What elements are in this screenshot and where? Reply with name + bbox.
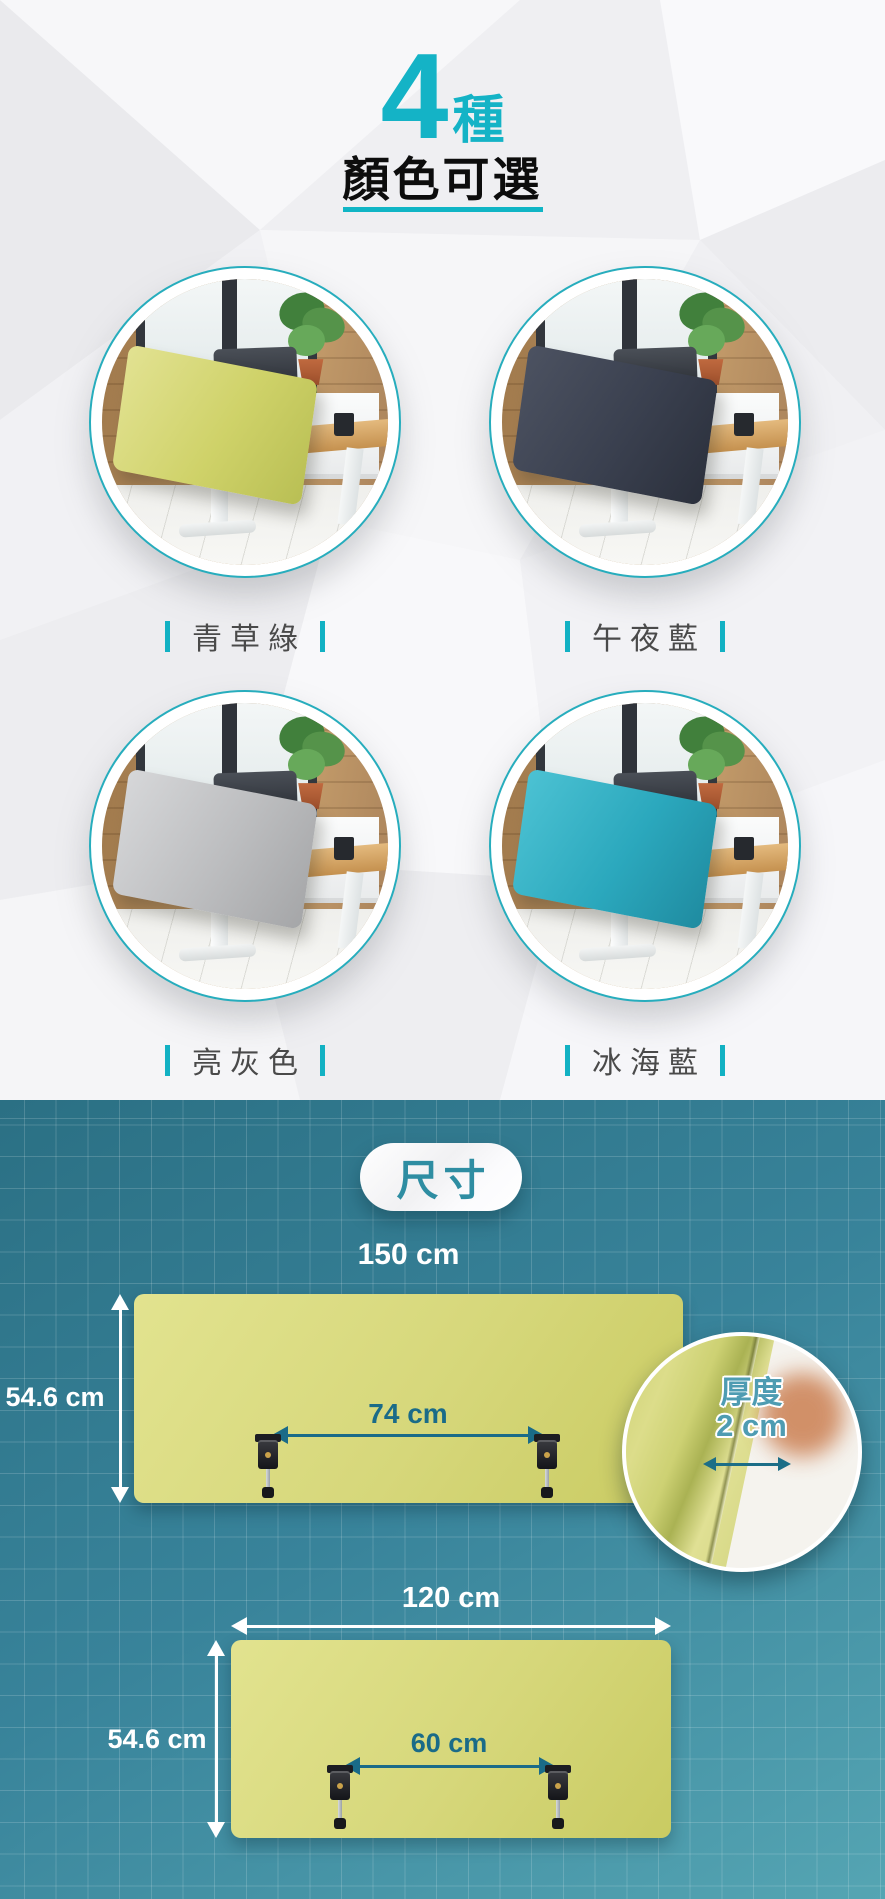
label-bar-right bbox=[320, 1045, 325, 1076]
title-underline bbox=[343, 207, 543, 212]
product-label-text: 午夜藍 bbox=[584, 614, 706, 658]
product-label-text: 亮灰色 bbox=[184, 1038, 306, 1082]
large-panel-span-label: 74 cm bbox=[308, 1398, 508, 1430]
small-panel-width-label: 120 cm bbox=[351, 1582, 551, 1615]
label-bar-right bbox=[720, 1045, 725, 1076]
dimensions-badge-text: 尺寸 bbox=[391, 1147, 490, 1208]
mug bbox=[334, 837, 354, 860]
desk-clamp bbox=[545, 1768, 571, 1830]
product-label-text: 冰海藍 bbox=[584, 1038, 706, 1082]
product-label: 冰海藍 bbox=[489, 1038, 801, 1082]
product-photo bbox=[502, 703, 788, 989]
product-label: 午夜藍 bbox=[489, 614, 801, 658]
panel-edge-fabric bbox=[622, 1332, 781, 1572]
product-card: 青草綠 bbox=[89, 266, 401, 658]
thickness-label: 厚度 2 cm bbox=[684, 1376, 819, 1443]
product-photo bbox=[102, 703, 388, 989]
small-panel-height-label: 54.6 cm bbox=[97, 1724, 217, 1755]
product-photo-circle bbox=[489, 266, 801, 578]
label-bar-left bbox=[565, 621, 570, 652]
thickness-inset-photo: 厚度 2 cm bbox=[622, 1332, 862, 1572]
mug bbox=[734, 413, 754, 436]
dimensions-section: 尺寸 150 cm 54.6 cm 74 cm 厚度 2 cm 120 bbox=[0, 1100, 885, 1899]
thickness-value: 2 cm bbox=[684, 1409, 819, 1442]
product-card: 亮灰色 bbox=[89, 690, 401, 1082]
large-panel-height-label: 54.6 cm bbox=[0, 1382, 110, 1413]
product-photo-circle bbox=[89, 266, 401, 578]
page-title: 4 種 bbox=[0, 40, 885, 153]
small-panel-span-label: 60 cm bbox=[349, 1728, 549, 1759]
product-card: 午夜藍 bbox=[489, 266, 801, 658]
color-options-section: 4 種 顏色可選 bbox=[0, 0, 885, 1100]
label-bar-left bbox=[165, 621, 170, 652]
product-label: 亮灰色 bbox=[89, 1038, 401, 1082]
product-photo bbox=[502, 279, 788, 565]
mug bbox=[334, 413, 354, 436]
desk-clamp bbox=[255, 1437, 281, 1499]
label-bar-right bbox=[320, 621, 325, 652]
label-bar-left bbox=[565, 1045, 570, 1076]
product-card: 冰海藍 bbox=[489, 690, 801, 1082]
thickness-label-text: 厚度 bbox=[684, 1376, 819, 1409]
dimensions-badge: 尺寸 bbox=[360, 1143, 522, 1211]
label-bar-left bbox=[165, 1045, 170, 1076]
desk-clamp bbox=[327, 1768, 353, 1830]
page-subtitle: 顏色可選 bbox=[0, 141, 885, 210]
desk-clamp bbox=[534, 1437, 560, 1499]
product-grid: 青草綠 bbox=[0, 266, 885, 1096]
product-label-text: 青草綠 bbox=[184, 614, 306, 658]
mug bbox=[734, 837, 754, 860]
large-panel-width-label: 150 cm bbox=[138, 1238, 679, 1272]
product-photo-circle bbox=[489, 690, 801, 1002]
product-photo bbox=[102, 279, 388, 565]
color-count: 4 bbox=[381, 40, 449, 152]
product-photo-circle bbox=[89, 690, 401, 1002]
label-bar-right bbox=[720, 621, 725, 652]
page: 4 種 顏色可選 bbox=[0, 0, 885, 1899]
product-label: 青草綠 bbox=[89, 614, 401, 658]
